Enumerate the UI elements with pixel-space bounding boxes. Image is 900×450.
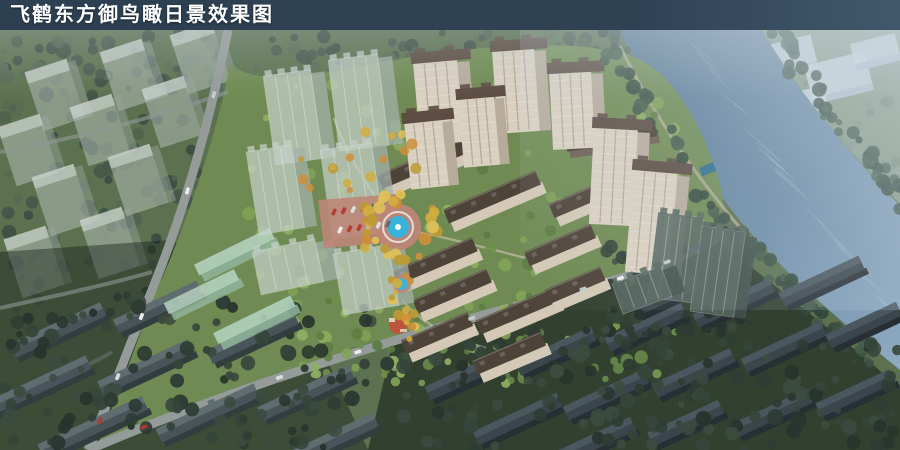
tree: [344, 391, 359, 406]
tree: [819, 343, 826, 350]
tree: [359, 314, 372, 327]
fountain-jet: [395, 224, 401, 230]
golden-tree: [389, 294, 395, 300]
tree: [635, 350, 648, 363]
golden-tree: [380, 244, 390, 254]
tree: [125, 297, 132, 304]
golden-tree: [427, 221, 439, 233]
tree: [483, 231, 490, 238]
golden-tree: [366, 214, 378, 226]
golden-tree: [343, 179, 352, 188]
tree: [696, 411, 712, 427]
tree: [763, 355, 771, 363]
tree: [872, 396, 887, 411]
tree: [649, 338, 661, 350]
tree: [459, 379, 466, 386]
tree: [203, 346, 211, 354]
tree: [47, 438, 54, 445]
tree: [137, 346, 152, 361]
tree: [834, 407, 841, 414]
tree: [280, 345, 292, 357]
tree: [634, 309, 644, 319]
tree: [473, 405, 480, 412]
tree: [508, 377, 515, 384]
tree: [167, 422, 176, 431]
tree: [548, 403, 556, 411]
tree: [651, 378, 663, 390]
tree: [23, 313, 34, 324]
tree: [192, 323, 200, 331]
tree: [104, 176, 112, 184]
tree: [534, 409, 547, 422]
golden-tree: [372, 237, 380, 245]
tree: [351, 328, 362, 339]
golden-tree: [419, 232, 432, 245]
top-haze: [0, 30, 900, 100]
golden-tree: [398, 130, 406, 138]
tree: [642, 392, 649, 399]
tree: [702, 393, 710, 401]
tree: [391, 377, 400, 386]
tree: [676, 420, 682, 426]
tree: [675, 328, 682, 335]
tree: [26, 393, 33, 400]
tree: [602, 433, 615, 446]
rendering-canvas: 飞鹤东方御鸟瞰日景效果图: [0, 0, 900, 450]
tree: [327, 396, 341, 410]
tree: [628, 429, 638, 439]
tree: [682, 311, 689, 318]
tree: [19, 337, 28, 346]
tree: [766, 336, 772, 342]
tree: [816, 381, 826, 391]
tree: [432, 406, 445, 419]
tree: [887, 425, 899, 437]
tree: [725, 427, 739, 441]
tree: [662, 326, 671, 335]
tree: [463, 418, 479, 434]
tree: [359, 359, 370, 370]
tree: [104, 393, 118, 407]
tree: [6, 399, 17, 410]
tree: [773, 398, 782, 407]
tree: [756, 373, 772, 389]
tree: [388, 346, 395, 353]
tree: [341, 348, 352, 359]
tree: [638, 364, 653, 379]
tree: [128, 363, 138, 373]
tree: [256, 389, 270, 403]
tree: [180, 341, 195, 356]
tree: [788, 393, 796, 401]
tree: [582, 326, 590, 334]
tree: [642, 331, 649, 338]
tree: [79, 311, 87, 319]
tree: [579, 419, 589, 429]
tree: [419, 380, 426, 387]
tree: [864, 337, 878, 351]
tree: [321, 309, 331, 319]
tree: [652, 369, 661, 378]
tree: [716, 328, 725, 337]
golden-tree: [406, 336, 412, 342]
tree: [836, 419, 843, 426]
tree: [230, 373, 239, 382]
tree: [170, 374, 184, 388]
tree: [240, 415, 248, 423]
tree: [14, 386, 26, 398]
golden-tree: [347, 187, 353, 193]
tree: [657, 360, 664, 367]
tree: [68, 314, 78, 324]
tree: [821, 421, 829, 429]
tree: [791, 412, 807, 428]
tree: [460, 372, 468, 380]
tree: [16, 331, 23, 338]
golden-tree: [393, 290, 398, 295]
tree: [288, 426, 297, 435]
tree: [88, 413, 96, 421]
golden-tree: [298, 174, 309, 185]
tree: [241, 356, 255, 370]
tree: [498, 258, 511, 271]
tree: [301, 364, 309, 372]
tree: [80, 392, 93, 405]
tree: [396, 359, 411, 374]
tree: [767, 409, 783, 425]
tree: [557, 397, 563, 403]
tree: [865, 359, 874, 368]
golden-tree: [409, 309, 418, 318]
golden-tree: [306, 184, 314, 192]
tree: [327, 376, 336, 385]
golden-tree: [393, 278, 403, 288]
tree: [2, 102, 10, 110]
tree: [24, 210, 34, 220]
tree: [89, 309, 97, 317]
tree: [498, 443, 505, 450]
tree: [158, 315, 167, 324]
tree: [380, 357, 394, 371]
tree: [794, 405, 801, 412]
tree: [131, 299, 146, 314]
tree: [467, 342, 477, 352]
tree: [651, 322, 660, 331]
tree: [206, 432, 218, 444]
tree: [302, 345, 316, 359]
tree: [397, 409, 411, 423]
tree: [492, 399, 503, 410]
tree: [855, 344, 865, 354]
tree: [621, 339, 632, 350]
tree: [682, 325, 695, 338]
tree: [620, 393, 635, 408]
tree: [57, 316, 69, 328]
tree: [43, 408, 53, 418]
golden-tree: [379, 155, 387, 163]
tree: [126, 312, 134, 320]
tree: [537, 378, 547, 388]
tree: [558, 346, 568, 356]
tree: [625, 325, 635, 335]
tree: [301, 424, 309, 432]
tree: [704, 326, 711, 333]
tree: [889, 410, 895, 416]
tree: [49, 374, 57, 382]
tree: [767, 440, 777, 450]
tree: [265, 441, 273, 449]
tree: [38, 337, 50, 349]
tree: [422, 436, 434, 448]
tree: [125, 413, 138, 426]
tree: [247, 421, 254, 428]
tree: [645, 416, 658, 429]
tree: [326, 298, 332, 304]
tree: [214, 414, 227, 427]
tree: [749, 411, 760, 422]
tree: [660, 339, 671, 350]
tree: [14, 194, 23, 203]
tree: [45, 354, 59, 368]
tree: [524, 376, 533, 385]
tree: [402, 391, 411, 400]
tree: [8, 434, 19, 445]
tree: [2, 207, 15, 220]
tree: [614, 381, 625, 392]
tree: [602, 376, 609, 383]
tree: [678, 378, 685, 385]
tree: [4, 170, 11, 177]
tree: [816, 408, 824, 416]
tree: [2, 409, 18, 425]
tree: [599, 336, 606, 343]
tree: [26, 196, 38, 208]
tree: [314, 343, 329, 358]
tree: [611, 412, 619, 420]
tree: [783, 380, 797, 394]
tree: [227, 302, 238, 313]
tree: [106, 308, 115, 317]
tree: [785, 365, 800, 380]
golden-tree: [346, 153, 355, 162]
golden-tree: [366, 172, 376, 182]
tree: [597, 386, 606, 395]
tree: [357, 342, 364, 349]
golden-tree: [360, 127, 370, 137]
tree: [727, 334, 736, 343]
tree: [656, 348, 667, 359]
tree: [485, 243, 496, 254]
tree: [449, 382, 456, 389]
tree: [873, 420, 886, 433]
tree: [585, 365, 597, 377]
tree: [213, 318, 221, 326]
tree: [172, 175, 178, 181]
golden-tree: [402, 273, 409, 280]
golden-tree: [362, 235, 372, 245]
tree: [94, 164, 108, 178]
tree: [372, 341, 382, 351]
tree: [623, 359, 636, 372]
tree: [678, 401, 685, 408]
tree: [445, 358, 452, 365]
tree: [25, 324, 38, 337]
golden-tree: [393, 310, 403, 320]
tree: [852, 359, 858, 365]
tree: [681, 421, 695, 435]
tree: [610, 357, 618, 365]
tree: [310, 402, 319, 411]
tree: [362, 379, 370, 387]
tree: [884, 371, 896, 383]
tree: [686, 356, 696, 366]
golden-tree: [410, 163, 421, 174]
tree: [831, 375, 839, 383]
tree: [718, 338, 727, 347]
tree: [591, 408, 606, 423]
tree: [224, 361, 232, 369]
caption-bar: 飞鹤东方御鸟瞰日景效果图: [0, 0, 900, 30]
golden-tree: [330, 164, 335, 169]
tree: [173, 359, 183, 369]
tree: [102, 322, 112, 332]
tree: [289, 437, 299, 447]
tree: [691, 380, 699, 388]
golden-tree: [400, 146, 409, 155]
tree: [61, 417, 74, 430]
tree: [433, 438, 443, 448]
tree: [381, 372, 387, 378]
tree: [293, 393, 301, 401]
tree: [351, 364, 359, 372]
tree: [327, 422, 342, 437]
tree: [0, 382, 10, 392]
tree: [166, 352, 173, 359]
tree: [6, 339, 17, 350]
golden-tree: [388, 132, 396, 140]
tree: [78, 366, 85, 373]
golden-tree: [378, 196, 386, 204]
golden-tree: [408, 322, 417, 331]
tree: [448, 405, 456, 413]
tree: [312, 370, 321, 379]
tree: [302, 315, 315, 328]
tree: [61, 357, 68, 364]
tree: [279, 395, 291, 407]
aerial-rendering: [0, 0, 900, 450]
tree: [297, 330, 308, 341]
golden-tree: [298, 156, 304, 162]
tree: [242, 207, 255, 220]
tree: [242, 431, 252, 441]
tree: [173, 404, 183, 414]
tree: [617, 439, 627, 449]
tree: [576, 344, 591, 359]
tree: [797, 340, 809, 352]
tree: [549, 364, 564, 379]
rendering-title: 飞鹤东方御鸟瞰日景效果图: [10, 0, 274, 30]
tree: [703, 358, 713, 368]
tree: [255, 409, 267, 421]
tree: [635, 384, 645, 394]
tree: [479, 304, 485, 310]
tree: [456, 359, 468, 371]
tree: [747, 320, 753, 326]
tree: [846, 435, 860, 449]
tree: [730, 369, 744, 383]
tree: [185, 402, 199, 416]
golden-tree: [388, 196, 398, 206]
tree: [841, 419, 856, 434]
tree: [224, 396, 236, 408]
golden-tree: [415, 253, 422, 260]
tree: [742, 406, 749, 413]
tree: [316, 332, 324, 340]
tree: [602, 325, 611, 334]
tree: [743, 340, 753, 350]
tree: [129, 399, 143, 413]
golden-tree: [404, 320, 409, 325]
tree: [338, 368, 345, 375]
tree: [727, 323, 736, 332]
tree: [286, 331, 295, 340]
golden-tree: [400, 255, 410, 265]
